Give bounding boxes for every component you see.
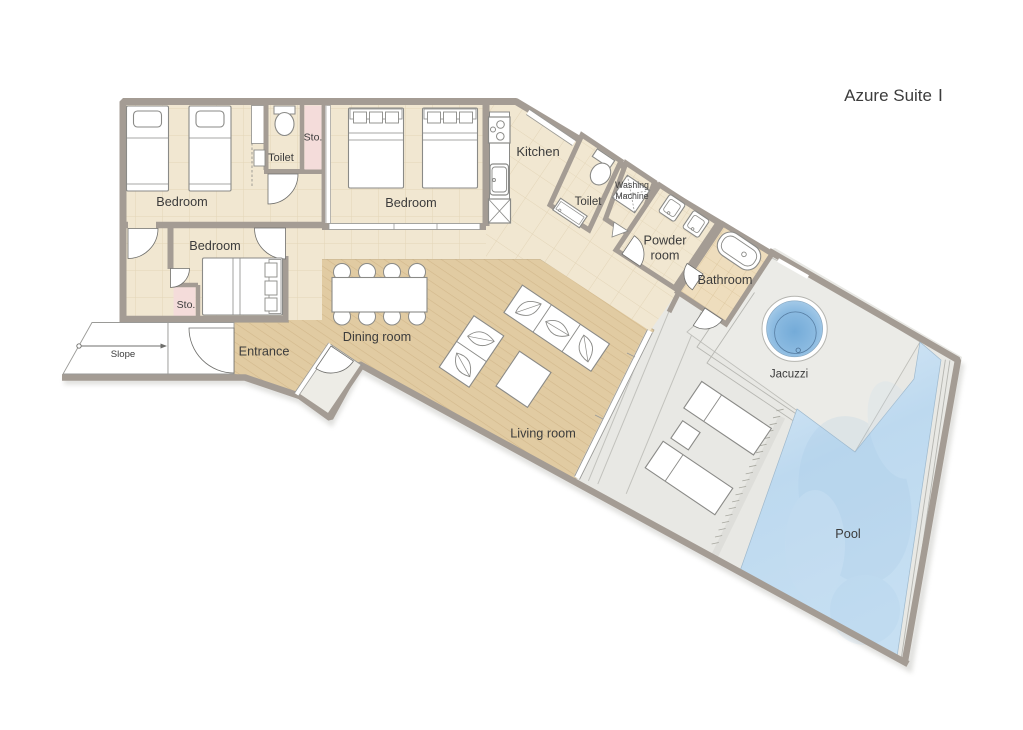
svg-text:Bedroom: Bedroom (385, 196, 436, 210)
svg-text:Jacuzzi: Jacuzzi (770, 369, 808, 381)
svg-text:Entrance: Entrance (239, 345, 290, 359)
svg-text:Azure Suite: Azure Suite (844, 86, 932, 105)
svg-text:Bathroom: Bathroom (697, 273, 752, 287)
svg-text:Powder: Powder (643, 234, 687, 248)
svg-text:I: I (938, 85, 943, 105)
svg-text:Pool: Pool (835, 527, 860, 541)
svg-text:Slope: Slope (111, 349, 136, 360)
svg-text:Machine: Machine (615, 191, 648, 201)
svg-text:Toilet: Toilet (268, 152, 294, 164)
svg-text:room: room (651, 249, 680, 263)
svg-text:Sto.: Sto. (177, 299, 196, 311)
svg-text:Bedroom: Bedroom (189, 239, 240, 253)
svg-text:Sto.: Sto. (304, 132, 323, 144)
svg-text:Washing: Washing (615, 180, 649, 190)
svg-text:Dining room: Dining room (343, 330, 411, 344)
svg-text:Bedroom: Bedroom (156, 195, 207, 209)
svg-text:Toilet: Toilet (575, 196, 603, 208)
svg-text:Living room: Living room (510, 427, 576, 441)
svg-text:Kitchen: Kitchen (516, 144, 559, 159)
